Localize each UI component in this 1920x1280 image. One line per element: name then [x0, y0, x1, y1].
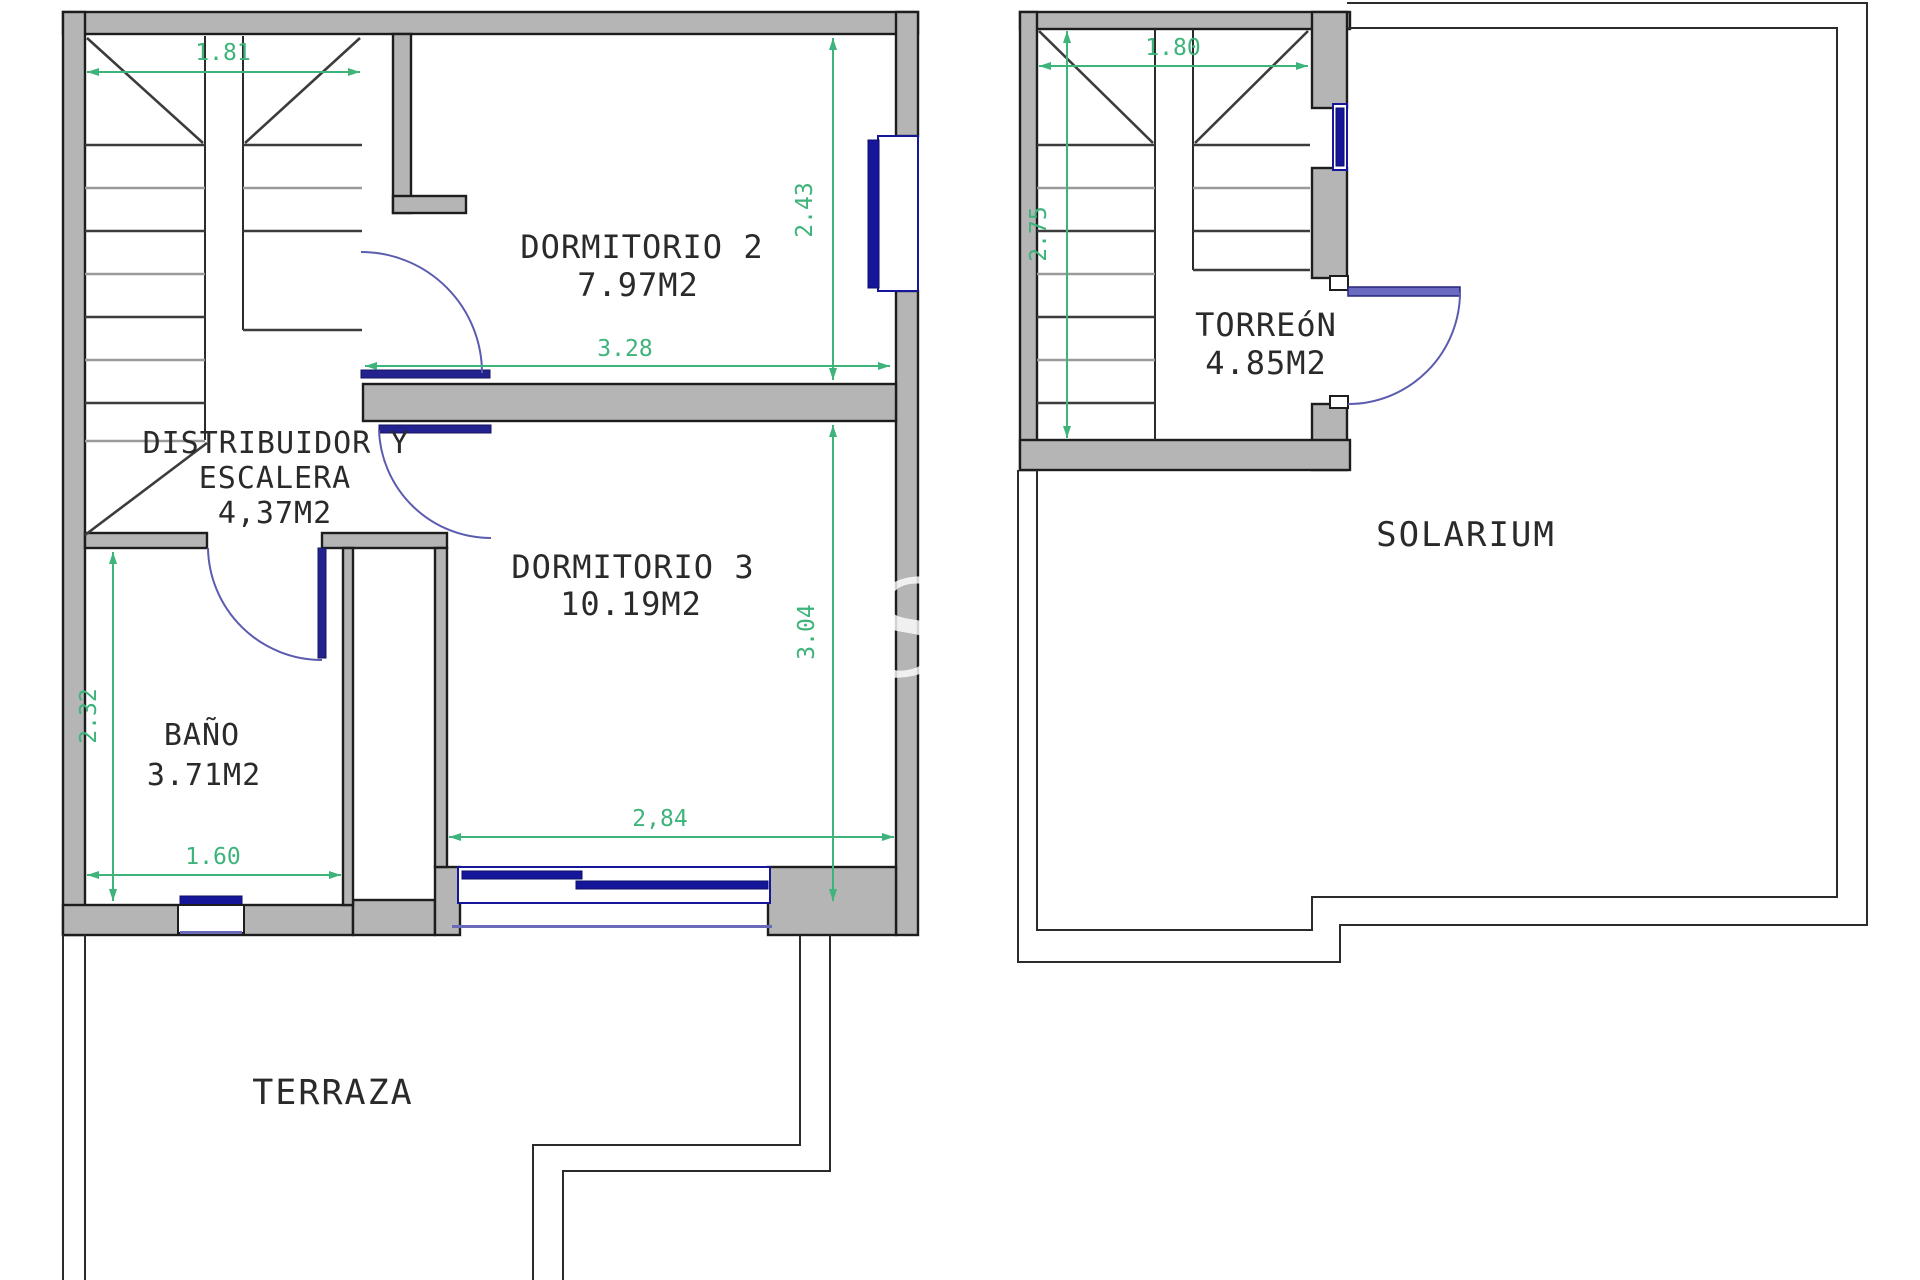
dim-bano-width: 1.60	[185, 844, 240, 870]
door-arc-bano	[208, 548, 322, 660]
floor1-plan: 1.81 2.43 3.28 3.04 2,84 1.60 2.32 DORMI…	[63, 12, 918, 1280]
wall-bottom-mid	[435, 867, 460, 935]
wall-left	[63, 12, 85, 935]
wall-stub-flange	[393, 196, 466, 213]
stair2-treads-right	[1193, 145, 1310, 270]
stair-diagonal-right	[245, 38, 360, 143]
floor2-walls	[1020, 12, 1350, 470]
door-leaf-torreon	[1348, 287, 1460, 296]
wall-closet-right	[435, 548, 447, 867]
window-recess-dorm2	[878, 136, 918, 291]
stair2-diagonal-left	[1039, 31, 1153, 143]
solarium-outline-inner	[1037, 28, 1837, 930]
labels-floor1: DORMITORIO 2 7.97M2 DISTRIBUIDOR Y ESCAL…	[143, 228, 764, 1113]
wall-dorm2-dorm3	[363, 384, 896, 421]
label-bano-area: 3.71M2	[147, 758, 261, 793]
label-distribuidor-1: DISTRIBUIDOR Y	[143, 426, 410, 461]
label-dormitorio2-area: 7.97M2	[577, 266, 699, 304]
door-arc-torreon	[1348, 292, 1460, 404]
torreon-door-jamb-bottom	[1330, 396, 1348, 408]
door-arc-dormitorio2	[361, 252, 482, 373]
label-solarium: SOLARIUM	[1376, 515, 1556, 555]
window-dorm3-sill	[452, 925, 772, 928]
torreon-wall-right-upper	[1312, 12, 1347, 108]
floorplan-svg: 1.81 2.43 3.28 3.04 2,84 1.60 2.32 DORMI…	[0, 0, 1920, 1280]
torreon-door-jamb-top	[1330, 276, 1348, 290]
label-distribuidor-2: ESCALERA	[199, 461, 352, 496]
label-dormitorio3-area: 10.19M2	[560, 585, 702, 623]
stair2-diagonal-right	[1195, 31, 1308, 143]
wall-bano-top-right	[322, 533, 447, 548]
stair-treads-right	[243, 145, 362, 330]
torreon-wall-right-mid	[1312, 168, 1347, 278]
label-dormitorio2: DORMITORIO 2	[520, 228, 763, 266]
terraza-right-outer	[563, 935, 830, 1280]
door-leaf-dormitorio2	[361, 370, 490, 378]
solarium-boundary	[1018, 3, 1867, 962]
dim-torreon-width: 1.80	[1145, 35, 1200, 61]
window-bano-box	[178, 905, 244, 933]
dim-dorm3-width: 2,84	[632, 806, 687, 832]
dim-dorm3-height: 3.04	[794, 604, 820, 659]
door-leaf-bano	[318, 548, 326, 658]
label-dormitorio3: DORMITORIO 3	[511, 548, 754, 586]
label-bano: BAÑO	[164, 717, 240, 753]
window-dorm3-sash2	[576, 881, 768, 889]
dim-dorm2-width: 3.28	[597, 336, 652, 362]
floorplan-page: 1.81 2.43 3.28 3.04 2,84 1.60 2.32 DORMI…	[0, 0, 1920, 1280]
labels-floor2: TORREóN 4.85M2 SOLARIUM	[1195, 306, 1556, 555]
wall-closet-left	[343, 548, 353, 905]
wall-stub-vertical	[393, 34, 411, 213]
label-torreon-area: 4.85M2	[1205, 344, 1327, 382]
wall-bano-top-left	[85, 533, 207, 548]
torreon-wall-bottom	[1020, 440, 1350, 470]
label-distribuidor-area: 4,37M2	[218, 496, 332, 531]
stair2-treads-left	[1037, 145, 1155, 403]
wall-top	[63, 12, 918, 34]
window-dorm3-sash1	[462, 871, 582, 879]
terraza-boundary	[63, 935, 830, 1280]
floor1-walls	[63, 12, 918, 935]
watermark: S	[855, 548, 964, 711]
wall-bottom-closet	[353, 900, 435, 935]
dim-torreon-height: 2.75	[1026, 206, 1052, 261]
solarium-outline-outer	[1018, 3, 1867, 962]
floor2-plan: 1.80 2.75 TORREóN 4.85M2 SOLARIUM	[1018, 3, 1867, 962]
window-dorm2	[868, 140, 879, 288]
stair-treads-left	[85, 145, 205, 441]
dim-dorm2-height: 2.43	[792, 182, 818, 237]
label-terraza: TERRAZA	[252, 1073, 414, 1113]
window-bano-sill	[180, 931, 242, 934]
terraza-right-inner	[533, 935, 800, 1280]
window-bano	[180, 896, 242, 905]
window-torreon	[1336, 108, 1344, 166]
torreon-wall-top	[1020, 12, 1350, 29]
stair-diagonal-left	[87, 38, 203, 143]
label-torreon: TORREóN	[1195, 306, 1337, 344]
wall-right-upper	[896, 12, 918, 136]
dim-stair-width: 1.81	[195, 40, 250, 66]
dim-bano-height: 2.32	[76, 688, 102, 743]
